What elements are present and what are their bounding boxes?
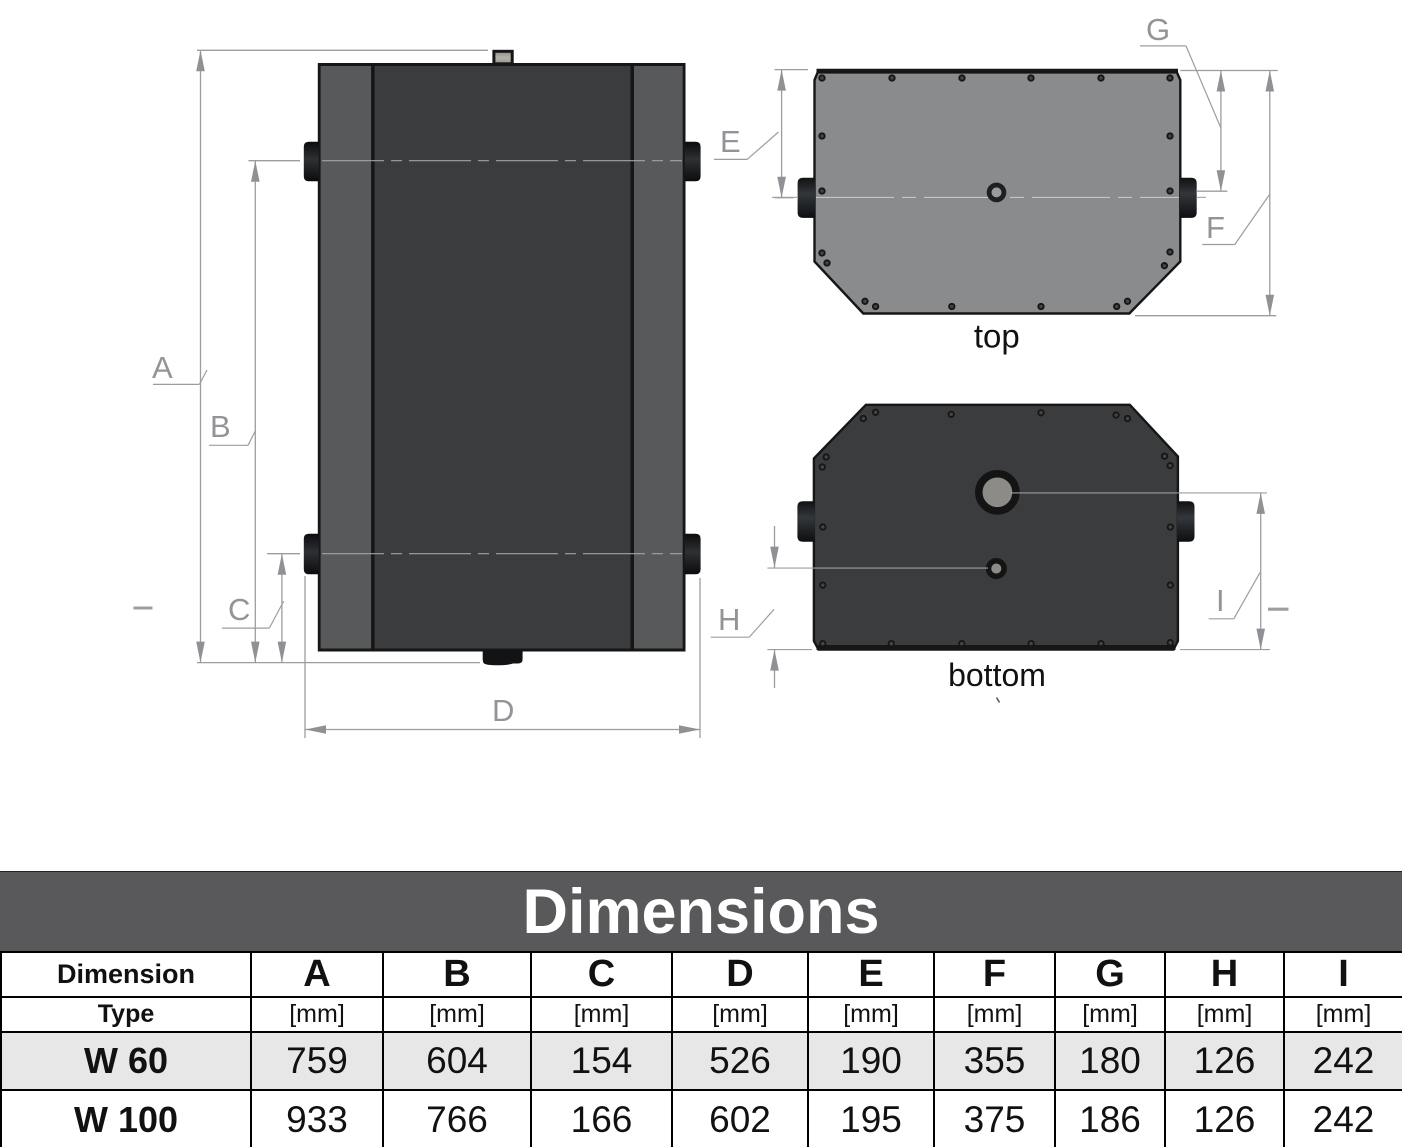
svg-text:F: F (1206, 210, 1225, 245)
svg-text:E: E (720, 124, 741, 159)
svg-text:C: C (228, 592, 250, 627)
svg-text:G: G (1146, 12, 1170, 47)
svg-text:B: B (210, 409, 231, 444)
svg-text:A: A (152, 350, 173, 385)
svg-text:H: H (718, 602, 740, 637)
svg-text:I: I (1216, 583, 1225, 618)
svg-text:D: D (492, 693, 514, 728)
svg-text:top: top (974, 318, 1020, 355)
svg-text:bottom: bottom (948, 657, 1046, 693)
